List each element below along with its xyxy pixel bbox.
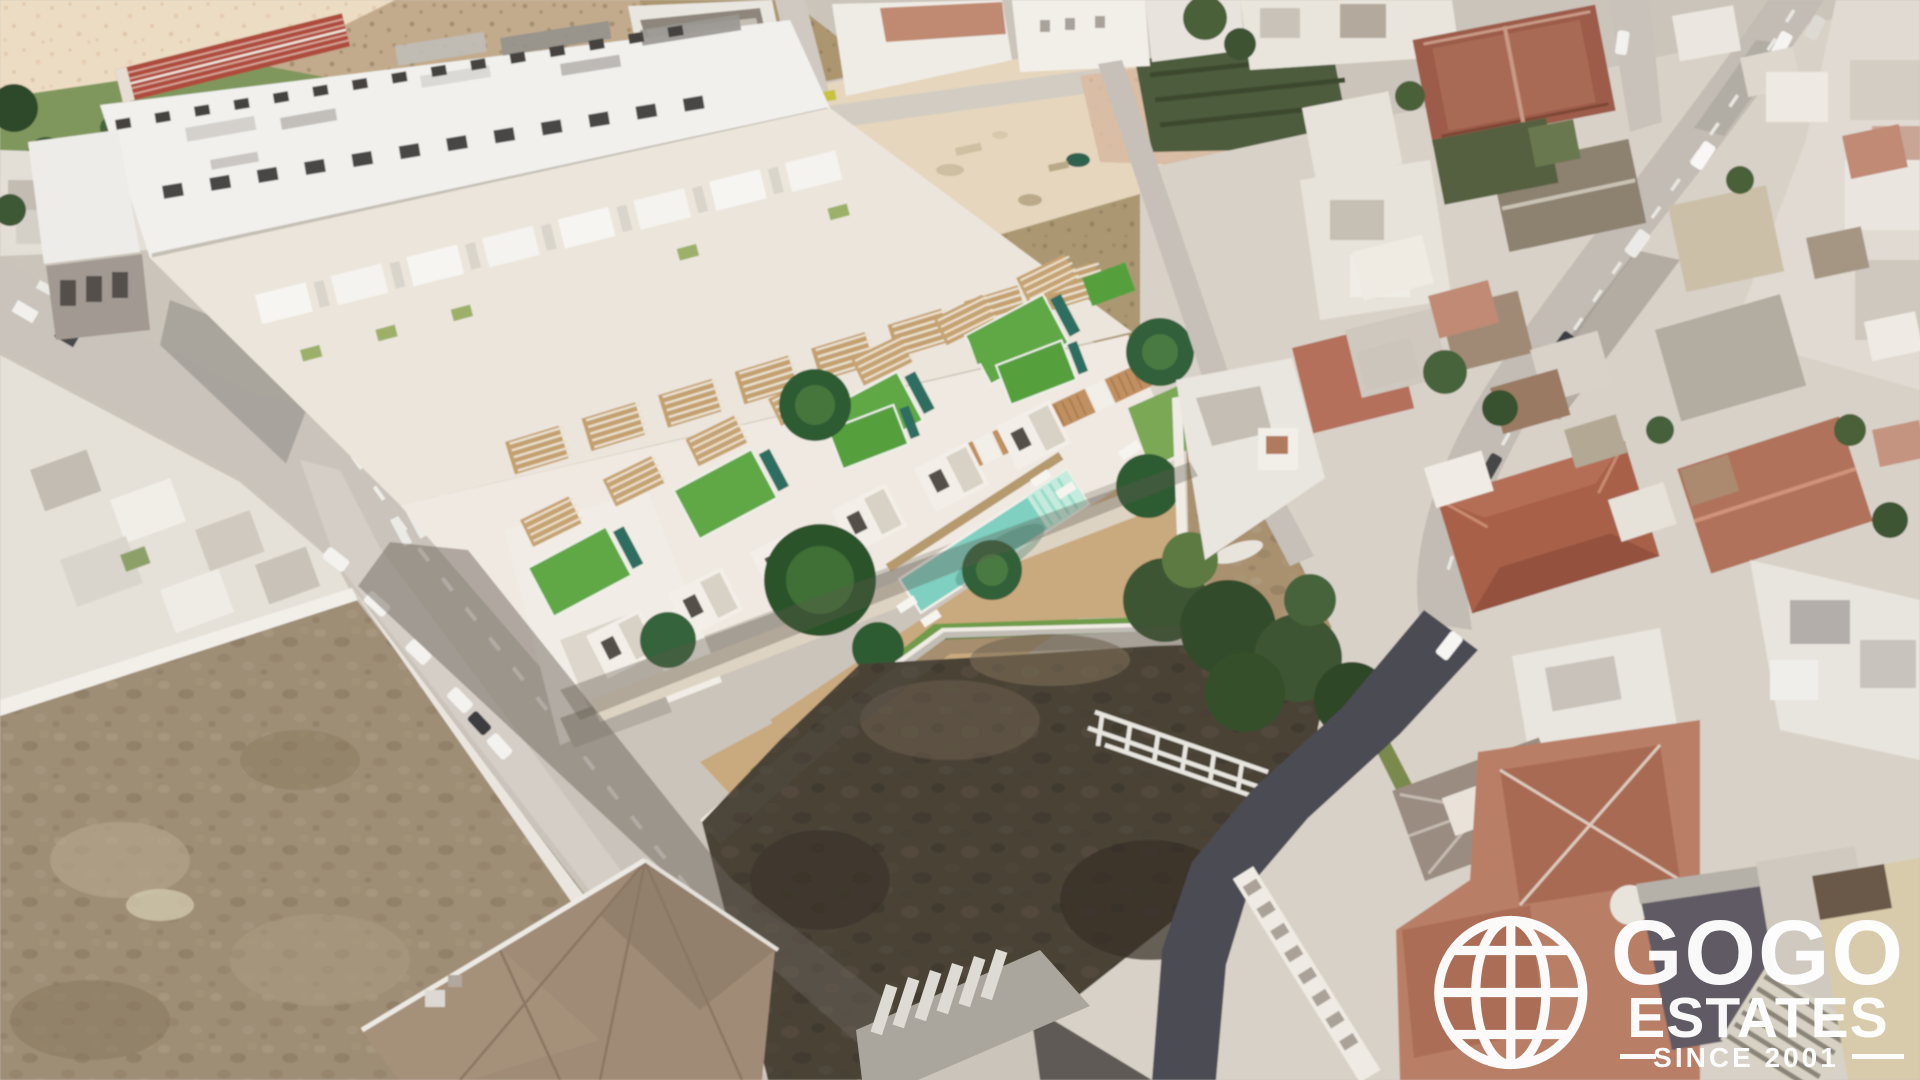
svg-text:ESTATES: ESTATES [1627, 986, 1888, 1050]
svg-text:SINCE 2001: SINCE 2001 [1653, 1042, 1839, 1073]
